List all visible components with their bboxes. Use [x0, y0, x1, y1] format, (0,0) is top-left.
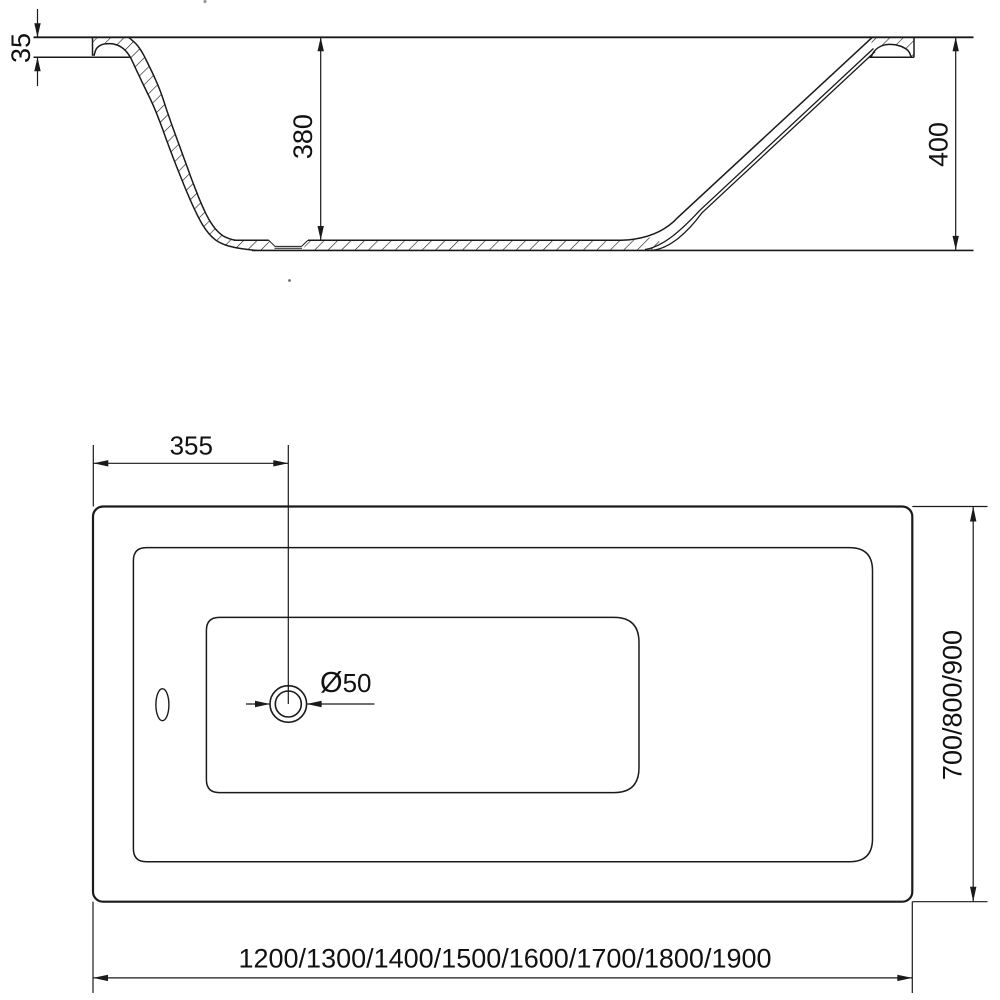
svg-text:Ø50: Ø50: [320, 667, 371, 699]
svg-text:380: 380: [288, 114, 318, 159]
svg-text:35: 35: [6, 33, 36, 63]
svg-text:400: 400: [924, 122, 954, 167]
svg-text:355: 355: [170, 431, 213, 461]
svg-text:700/800/900: 700/800/900: [938, 630, 968, 780]
svg-text:1200/1300/1400/1500/1600/1700/: 1200/1300/1400/1500/1600/1700/1800/1900: [238, 943, 771, 973]
